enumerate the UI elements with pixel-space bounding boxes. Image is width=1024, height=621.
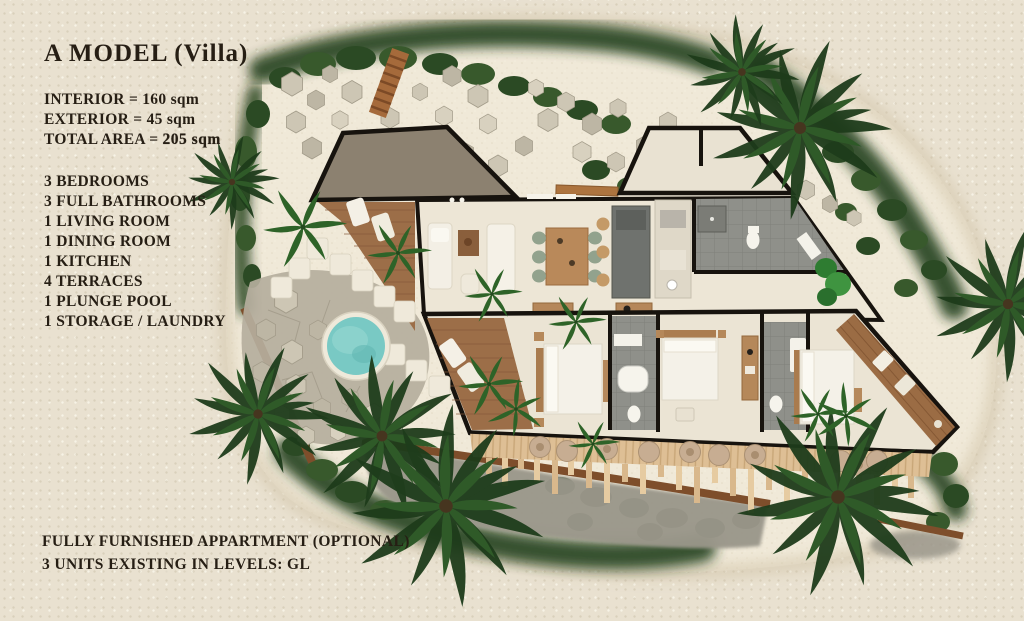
info-panel: A MODEL (Villa) INTERIOR = 160 sqm EXTER… (44, 40, 248, 348)
feature-item: 4 TERRACES (44, 272, 248, 292)
spec-interior: INTERIOR = 160 sqm (44, 90, 248, 110)
page-title: A MODEL (Villa) (44, 40, 248, 68)
title-main: A MODEL (44, 40, 167, 67)
spec-total-value: 205 sqm (163, 131, 221, 148)
spec-exterior: EXTERIOR = 45 sqm (44, 110, 248, 130)
footer-notes: FULLY FURNISHED APPARTMENT (OPTIONAL) 3 … (42, 530, 410, 576)
bathroom-1 (610, 314, 658, 432)
spec-total: TOTAL AREA = 205 sqm (44, 130, 248, 150)
brochure-page: A MODEL (Villa) INTERIOR = 160 sqm EXTER… (0, 0, 1024, 621)
dining-set (532, 228, 602, 285)
feature-item: 3 BEDROOMS (44, 172, 248, 192)
feature-item: 1 KITCHEN (44, 252, 248, 272)
plunge-pool (322, 312, 390, 380)
bedroom-1 (534, 332, 610, 427)
feature-item: 1 PLUNGE POOL (44, 292, 248, 312)
title-suffix: (Villa) (174, 40, 248, 67)
footer-line-2: 3 UNITS EXISTING IN LEVELS: GL (42, 553, 410, 576)
area-specs: INTERIOR = 160 sqm EXTERIOR = 45 sqm TOT… (44, 90, 248, 150)
footer-line-1: FULLY FURNISHED APPARTMENT (OPTIONAL) (42, 530, 410, 553)
feature-item: 1 DINING ROOM (44, 232, 248, 252)
feature-item: 1 STORAGE / LAUNDRY (44, 312, 248, 332)
feature-list: 3 BEDROOMS 3 FULL BATHROOMS 1 LIVING ROO… (44, 172, 248, 332)
feature-item: 1 LIVING ROOM (44, 212, 248, 232)
feature-item: 3 FULL BATHROOMS (44, 192, 248, 212)
